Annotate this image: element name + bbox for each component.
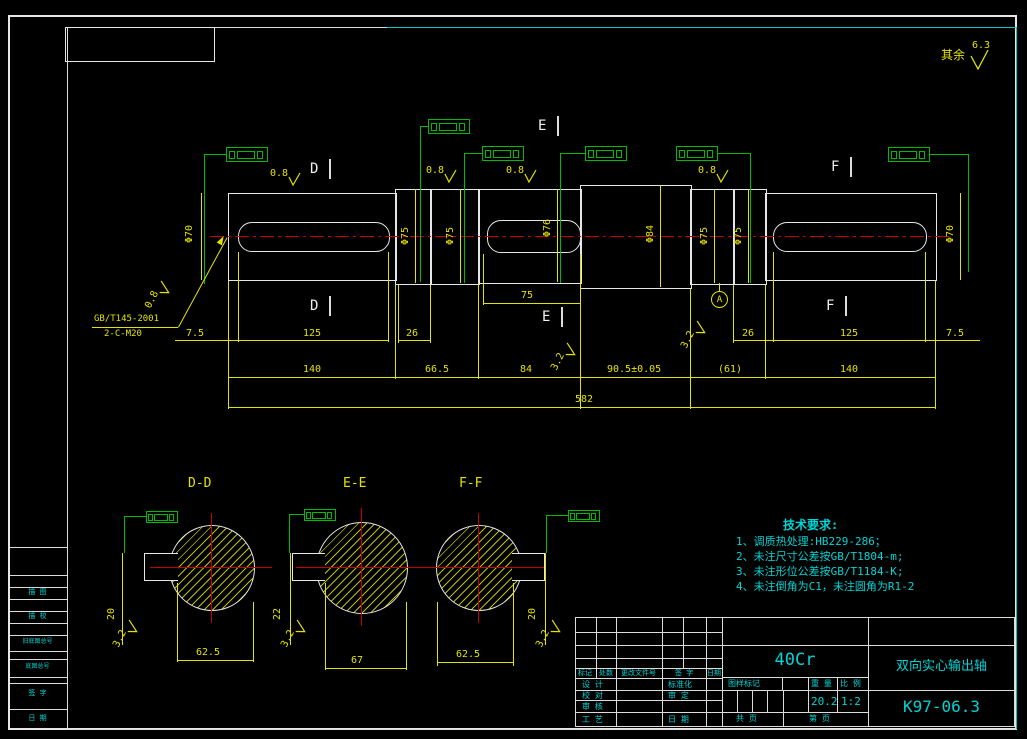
section-ee-label: E-E [343,477,366,490]
dim: 84 [520,365,532,375]
hg [560,153,585,154]
vy [415,189,416,283]
m [312,512,326,519]
dia-left-step2: Φ75 [446,214,456,258]
weight-value: 20.2 [811,696,838,707]
cut-label-d-top: D [310,162,318,176]
section-ee-circle [316,522,408,614]
s [591,513,596,520]
hy [177,660,253,661]
dia-right-end: Φ70 [946,212,956,256]
vl [752,690,753,712]
s [431,123,437,131]
strip-old-master-no-label: 旧底图总号 [10,639,65,645]
drawing-number: K97-06.3 [868,699,1015,715]
cut-label-d-bottom: D [310,299,318,313]
role-standard: 标准化 [668,681,692,689]
rev-mark-label: 标记 [578,670,592,677]
vg [750,153,751,283]
inner-frame-right [1016,27,1017,729]
vy [388,252,389,342]
hl [10,599,67,600]
shaft-centerline [210,236,950,237]
vy [483,254,484,305]
section-ee-depth: 22 [273,599,283,629]
cut-label-f-top: F [831,160,839,174]
hl [722,645,1015,646]
roughness-mark: 0.8 [426,166,457,184]
rev-count-label: 处数 [599,670,613,677]
hy [765,340,925,341]
rev-file-label: 更改文件号 [621,670,656,677]
vg [464,153,465,283]
vl [783,690,784,727]
vl [722,617,723,727]
hl [575,645,722,646]
vrs [211,513,212,623]
tolerance-frame [226,147,268,162]
hg [718,153,750,154]
vy [925,252,926,342]
vl [767,690,768,712]
hg [930,154,968,155]
dia-center: Φ84 [646,212,656,256]
tolerance-frame [585,146,627,161]
hy [925,340,980,341]
dim: (61) [718,365,742,375]
s [570,513,575,520]
hl [10,683,67,684]
vl [329,296,331,316]
vl [557,116,559,136]
general-roughness-label: 其余 [941,49,965,61]
tolerance-frame [888,147,930,162]
strip-signature-label: 签 字 [10,690,65,697]
dim: 140 [840,365,858,375]
dim-total: 582 [575,395,593,405]
vy [430,285,431,343]
vl [329,159,331,179]
hg [420,126,428,127]
hg [124,516,146,517]
strip-trace-label: 描 图 [10,589,65,596]
hrs [414,567,544,568]
dim: 140 [303,365,321,375]
hl [10,709,67,710]
dia-left-step: Φ75 [401,214,411,258]
vy [660,185,661,287]
hl [575,658,722,659]
hy [325,668,406,669]
s [891,151,897,159]
line: 0.8 [698,166,716,176]
part-name: 双向实心输出轴 [868,660,1015,673]
dim: 125 [840,329,858,339]
section-dd-depth: 20 [107,599,117,629]
vl [662,617,663,727]
vy [177,583,178,662]
line [971,50,988,69]
m [687,150,705,158]
vy [325,583,326,670]
tolerance-frame [676,146,718,161]
hl [575,678,722,679]
vy [748,189,749,283]
m [493,150,511,158]
roughness-mark: 0.8 [270,169,301,187]
line [525,170,536,182]
vg [289,514,290,553]
vy [460,189,461,283]
section-ff-width: 62.5 [456,650,480,660]
vy [773,252,774,342]
section-ff-circle [436,525,522,611]
s [306,512,311,519]
vy [719,283,720,291]
tolerance-frame [568,510,600,522]
role-check: 校 对 [582,692,603,700]
line [288,172,301,187]
role-review: 审 核 [582,703,603,711]
vy [690,289,691,409]
scale-value: 1:2 [841,696,861,707]
vy [253,602,254,662]
vl [683,617,684,668]
line [524,169,537,184]
vy [437,602,438,666]
hl [10,659,67,660]
section-dd-label: D-D [188,477,211,490]
vg [204,154,205,284]
vy [478,284,479,379]
s [229,151,235,159]
m [237,151,255,159]
dim: 26 [742,329,754,339]
strip-trace-check-label: 描 校 [10,613,65,620]
dia-right-step: Φ75 [700,214,710,258]
section-ee-width: 67 [351,656,363,666]
section-dd-circle [169,525,255,611]
hy [238,340,388,341]
role-process: 工 艺 [582,716,603,724]
role-approve: 审 定 [668,692,689,700]
hy [483,303,580,304]
cut-label-f-bottom: F [826,299,834,313]
vy [557,189,558,282]
section-dd-width: 62.5 [196,648,220,658]
sheet-total: 共 页 [736,715,757,723]
vy [398,285,399,343]
hl [722,690,1015,691]
m [154,514,168,521]
s [459,123,465,131]
material: 40Cr [722,652,868,669]
sheet-no: 第 页 [809,715,830,723]
hy [228,407,935,408]
rev-sign-label: 签 字 [675,670,693,677]
scale-label: 比 例 [840,680,861,688]
hl [10,547,67,548]
line [445,170,456,182]
dim: 7.5 [946,329,964,339]
hy [733,340,765,341]
dim: 90.5±0.05 [607,365,661,375]
dim: 26 [406,329,418,339]
thread-note-line2: 2-C-M20 [104,330,142,339]
line: 0.8 [426,166,444,176]
vrs [478,513,479,623]
vg [124,516,125,553]
vy [228,281,229,409]
line [289,173,300,185]
tolerance-frame [146,511,178,523]
section-ff-label: F-F [459,477,482,490]
top-left-block [65,27,215,62]
tech-req-title: 技术要求: [783,519,838,531]
vl [808,677,809,712]
hg [289,514,304,515]
tech-req-item: 1、调质热处理:HB229-286； [736,536,886,547]
strip-date-label: 日 期 [10,715,65,722]
dim: 7.5 [186,329,204,339]
hg [204,154,226,155]
s [257,151,263,159]
hl [575,632,722,633]
s [485,150,491,158]
s [588,150,594,158]
vg [968,154,969,272]
tech-req-item: 3、未注形位公差按GB/T1184-K; [736,566,903,577]
tolerance-frame [428,119,470,134]
s [169,514,174,521]
hl [10,651,67,652]
s [919,151,925,159]
dim: 66.5 [425,365,449,375]
line [444,169,457,184]
hg [464,153,482,154]
rev-date-label: 日期 [707,670,721,677]
shaft-seg-center [580,185,692,289]
hl [722,712,868,713]
cut-label-e-top: E [538,119,546,133]
inner-frame-top-cyan [387,27,1016,28]
tolerance-frame [482,146,524,161]
dim: 75 [521,291,533,301]
s [513,150,519,158]
vl [616,617,617,727]
m [596,150,614,158]
s [707,150,713,158]
s [327,512,332,519]
tech-req-item: 4、未注倒角为C1，未注圆角为R1-2 [736,581,914,592]
hy [228,377,935,378]
vy [513,583,514,666]
line: 0.8 [506,166,524,176]
inner-frame-bottom [67,729,1016,730]
s [148,514,153,521]
m [899,151,917,159]
s [679,150,685,158]
roughness-mark: 0.8 [506,166,537,184]
hy [92,327,178,328]
tech-req-item: 2、未注尺寸公差按GB/T1804-m; [736,551,903,562]
dia-right-step2: Φ75 [734,214,744,258]
thread-note-line1: GB/T145-2001 [94,315,159,324]
dim: 125 [303,329,321,339]
keyway-right [773,222,927,252]
inner-frame-left [67,27,68,729]
role-date: 日 期 [668,716,689,724]
datum-a: A [711,291,728,308]
mark-label: 图样标记 [728,680,760,688]
hl [575,712,722,713]
section-ff-depth: 20 [528,599,538,629]
vg [560,153,561,283]
vy [395,285,396,379]
vg [420,126,421,282]
hy [398,340,430,341]
weight-label: 重 量 [811,680,832,688]
tolerance-frame [304,509,336,521]
vy [960,193,961,280]
hl [10,575,67,576]
vg [546,515,547,553]
vy [406,602,407,670]
hl [10,623,67,624]
cad-drawing-sheet: 描 图 描 校 旧底图总号 底图总号 签 字 日 期 其余 6.3 Φ70 Φ7… [0,0,1027,739]
line: 0.8 [270,169,288,179]
dia-left-end: Φ70 [185,212,195,256]
vy [935,281,936,409]
strip-master-no-label: 底图总号 [10,664,65,670]
vl [850,157,852,177]
roughness-mark: 0.8 [698,166,729,184]
vy [765,285,766,379]
hl [575,700,722,701]
vrs [361,508,362,626]
line [716,169,729,184]
cut-label-e-bottom: E [542,310,550,324]
hl [722,677,868,678]
vy [580,289,581,409]
vy [733,285,734,343]
vy [238,252,239,342]
s [616,150,622,158]
line [717,170,728,182]
keyway-left [238,222,390,252]
dia-mid-key: Φ76 [543,206,553,250]
hy [437,662,513,663]
hl [10,635,67,636]
vy [201,193,202,280]
hg [546,515,568,516]
roughness-icon [970,49,990,71]
vl [845,296,847,316]
shaft-seg-step3 [690,189,735,285]
vl [737,690,738,712]
m [439,123,457,131]
m [576,513,590,520]
vl [782,677,783,690]
vl [561,307,563,327]
vy [714,189,715,283]
role-design: 设 计 [582,681,603,689]
hl [10,677,67,678]
